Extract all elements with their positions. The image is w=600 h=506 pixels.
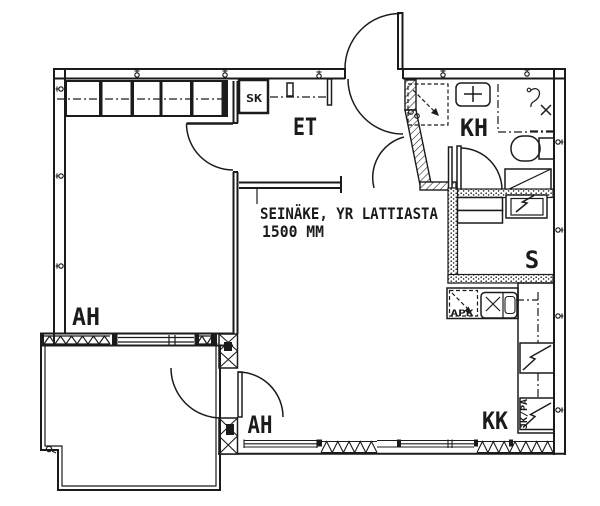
partition-lines bbox=[239, 176, 341, 193]
room-label-ah-lower: AH bbox=[248, 411, 273, 439]
door-arc-kh bbox=[373, 137, 404, 188]
balcony-door-window bbox=[118, 335, 194, 345]
window-band-bottom bbox=[244, 440, 553, 453]
room-label-ah-upper: AH bbox=[72, 303, 100, 331]
outlet-symbol bbox=[556, 407, 564, 412]
balcony-drain-tick bbox=[52, 451, 56, 453]
wall-right bbox=[554, 68, 565, 455]
washbasin-cross bbox=[464, 86, 482, 102]
fridge-bolt-1 bbox=[523, 346, 551, 371]
sauna-bench-2 bbox=[458, 211, 503, 224]
hatched-wall-diagonal bbox=[405, 110, 431, 185]
shower-hose bbox=[530, 89, 539, 107]
entrance-jamb-ticks bbox=[345, 68, 403, 79]
sink-cross bbox=[486, 297, 500, 311]
vestibule-walls bbox=[373, 80, 456, 190]
bottom-zigzag-2 bbox=[477, 442, 553, 453]
shower-head-cross bbox=[541, 105, 551, 115]
wall-left bbox=[54, 68, 65, 346]
entrance-door-leaf bbox=[398, 13, 403, 69]
outlet-symbol bbox=[56, 173, 64, 178]
outlet-symbol bbox=[316, 71, 321, 79]
jamb-block-lower bbox=[219, 418, 238, 454]
outlet-symbol bbox=[556, 139, 564, 144]
outlet-symbol bbox=[524, 69, 529, 77]
bench-diagonal bbox=[505, 169, 551, 191]
lower-door-arc-left bbox=[171, 368, 221, 418]
floor-plan-drawing: AH SK ET KH bbox=[0, 0, 600, 506]
bottom-zigzag-1 bbox=[321, 442, 377, 453]
outlet-symbol bbox=[556, 313, 564, 318]
room-label-et: ET bbox=[293, 113, 317, 141]
shower-hook bbox=[527, 88, 531, 92]
appliance-label-apk: APK bbox=[451, 309, 475, 319]
entrance-door-arc-out bbox=[345, 14, 400, 69]
bottom-window-1 bbox=[244, 440, 317, 449]
outlet-symbol bbox=[134, 70, 139, 78]
lower-door-leaf bbox=[238, 372, 242, 417]
duct-stub bbox=[287, 83, 293, 96]
door-arc-ah-upper bbox=[187, 124, 234, 171]
room-sauna: S bbox=[448, 188, 553, 283]
balcony-rail-outer bbox=[41, 346, 220, 490]
sauna-wall-bottom bbox=[448, 275, 553, 284]
sauna-door-leaf bbox=[457, 146, 461, 191]
annotation-line2: 1500 MM bbox=[262, 222, 324, 241]
wall-stub-kh bbox=[449, 147, 453, 190]
outlet-symbol bbox=[222, 70, 227, 78]
lower-door-wall: AH bbox=[171, 334, 283, 454]
toilet-bowl bbox=[511, 136, 540, 161]
annotation-line1: SEINÄKE, YR LATTIASTA bbox=[260, 204, 438, 223]
appliance-label-jkpa: JK/PA bbox=[520, 398, 530, 429]
bottom-wall-seg bbox=[377, 441, 400, 448]
entrance-door-arc-in bbox=[348, 79, 403, 134]
wall-top bbox=[53, 69, 566, 79]
jamb-cell-dark-lower bbox=[226, 424, 234, 435]
closet-label-sk: SK bbox=[246, 92, 262, 105]
outlet-symbol bbox=[56, 86, 64, 91]
room-ah-upper: AH bbox=[57, 81, 238, 334]
outlet-symbol bbox=[440, 70, 445, 78]
floor-plan-page: AH SK ET KH bbox=[0, 0, 600, 506]
partition-screen: SEINÄKE, YR LATTIASTA 1500 MM bbox=[239, 176, 438, 241]
room-label-s: S bbox=[525, 246, 539, 274]
sink-drainer bbox=[505, 297, 515, 314]
wall-ah-et bbox=[233, 81, 238, 334]
sauna-bench-1 bbox=[458, 198, 503, 211]
outlet-symbol bbox=[56, 263, 64, 268]
room-label-kk: KK bbox=[482, 407, 508, 435]
outlet-symbol bbox=[556, 227, 564, 232]
sauna-door-arc bbox=[461, 148, 502, 190]
bottom-window-2 bbox=[400, 440, 474, 449]
toilet-tank bbox=[539, 138, 554, 159]
sauna-wall-west bbox=[448, 188, 458, 283]
room-kk: APK JK/PA KK bbox=[447, 283, 554, 435]
wall-stub-entry bbox=[328, 79, 332, 105]
balcony-rail-inner bbox=[45, 346, 216, 486]
window-band-south bbox=[40, 334, 233, 346]
balcony bbox=[41, 346, 220, 490]
room-label-kh: KH bbox=[460, 114, 488, 142]
